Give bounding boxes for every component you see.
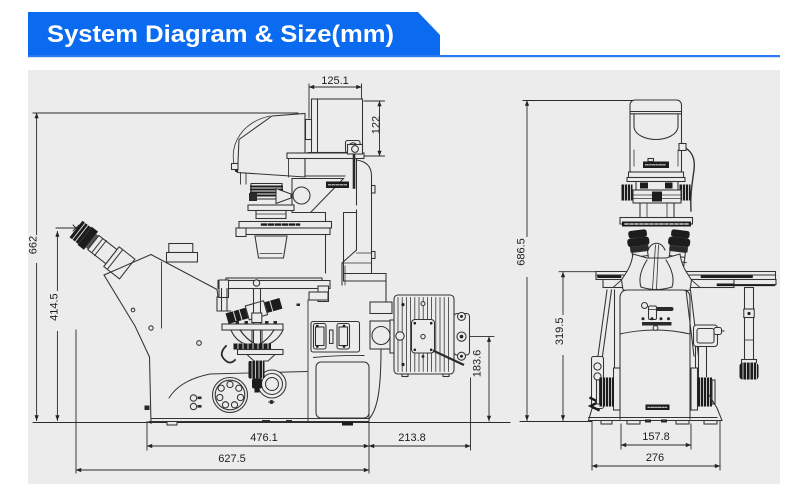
svg-text:213.8: 213.8 [398,432,426,444]
svg-text:157.8: 157.8 [642,431,670,443]
svg-text:System Diagram & Size(mm): System Diagram & Size(mm) [47,21,394,48]
svg-text:627.5: 627.5 [218,453,246,465]
svg-text:686.5: 686.5 [516,238,528,266]
svg-text:276: 276 [646,452,664,464]
svg-text:662: 662 [28,236,40,254]
svg-text:125.1: 125.1 [321,75,349,87]
svg-text:183.6: 183.6 [472,350,484,378]
svg-text:319.5: 319.5 [554,318,566,346]
svg-text:414.5: 414.5 [48,293,60,321]
svg-text:122: 122 [371,116,383,134]
svg-text:476.1: 476.1 [250,432,278,444]
